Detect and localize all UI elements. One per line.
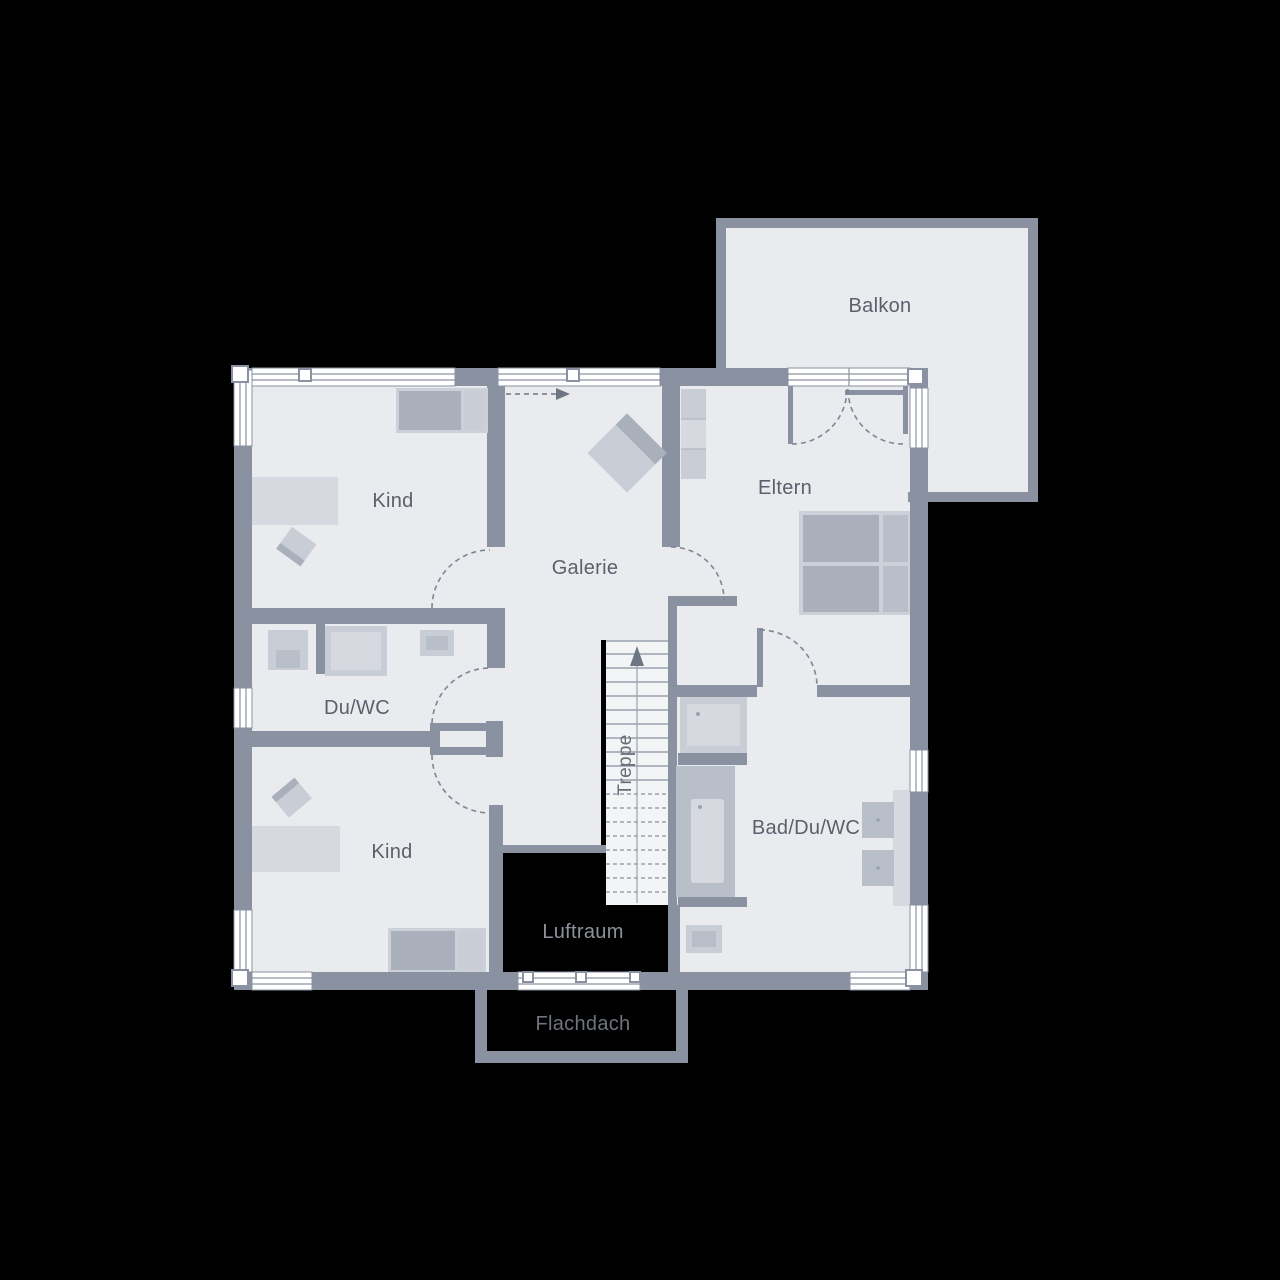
- balcony-wall-bottom: [908, 492, 1038, 502]
- wall-duwc-kind-bottom: [252, 731, 440, 747]
- exterior-wall-left: [234, 368, 252, 990]
- exterior-wall-right: [910, 368, 928, 990]
- label-luftraum: Luftraum: [542, 921, 623, 943]
- window-kind-bottom-south: [252, 972, 312, 990]
- shower-drain: [696, 712, 700, 716]
- stairwell-open-edge: [601, 640, 606, 852]
- label-treppe: Treppe: [615, 734, 636, 795]
- balcony-wall-left: [716, 218, 726, 368]
- bed-mattress: [399, 391, 461, 430]
- label-eltern: Eltern: [758, 477, 812, 499]
- window-post: [576, 972, 586, 982]
- window-post: [567, 369, 579, 381]
- wall-kind-top-galerie: [487, 386, 505, 547]
- bed-mattress-right: [803, 566, 879, 612]
- wall-eltern-bad-right: [817, 685, 910, 697]
- wardrobe-shelf: [681, 419, 706, 449]
- guard-rail-void: [503, 845, 606, 853]
- balcony-wall-right: [1028, 218, 1038, 502]
- wall-tub-bottom: [678, 897, 747, 907]
- window-post: [299, 369, 311, 381]
- window-kind-top-north: [252, 368, 455, 386]
- window-eltern-east: [910, 388, 928, 448]
- wall-lobby-top: [668, 596, 737, 606]
- label-bad-du-wc: Bad/Du/WC: [752, 817, 860, 839]
- bed-mattress: [391, 931, 455, 970]
- balcony-door-leaf-left: [788, 386, 793, 444]
- window-kind-bottom-west: [234, 910, 252, 972]
- bed-mattress-left: [803, 515, 879, 562]
- wall-kind-bottom-void: [489, 805, 503, 972]
- bathtub-drain: [698, 805, 702, 809]
- window-bad-southeast: [910, 905, 928, 972]
- window-bad-east: [910, 750, 928, 792]
- window-duwc-west: [234, 688, 252, 728]
- label-galerie: Galerie: [552, 557, 619, 579]
- shower-tray: [331, 632, 381, 670]
- window-corner-post: [232, 366, 248, 382]
- door-leaf-duwc: [430, 723, 490, 731]
- wall-eltern-bad-left: [677, 685, 757, 697]
- balcony-door-leaf-right: [903, 386, 908, 434]
- window-corner-post: [906, 970, 922, 986]
- desk: [252, 826, 340, 872]
- label-balkon: Balkon: [849, 295, 912, 317]
- window-post: [630, 972, 640, 982]
- wall-kind-top-duwc: [252, 608, 505, 624]
- window-post: [523, 972, 533, 982]
- label-flachdach: Flachdach: [536, 1013, 631, 1035]
- sliding-door-rail: [845, 390, 907, 395]
- partition-stub: [316, 624, 325, 674]
- label-duwc: Du/WC: [324, 697, 390, 719]
- door-leaf-kind-bottom: [430, 747, 490, 755]
- window-bad-south: [850, 972, 910, 990]
- floor-plan: Balkon Kind Galerie Eltern Du/WC Kind Ba…: [0, 0, 1280, 1280]
- wall-duwc-hall: [487, 624, 505, 668]
- bed-pillow: [464, 391, 484, 430]
- shower-tray: [687, 704, 740, 746]
- door-hinge-block: [486, 721, 503, 757]
- wall-galerie-eltern: [662, 386, 680, 547]
- vanity-counter: [893, 790, 910, 906]
- void-area: [503, 851, 606, 972]
- bed-pillow: [459, 931, 483, 970]
- desk: [252, 477, 338, 525]
- window-corner-post: [908, 369, 923, 384]
- washbasin-bowl: [276, 650, 300, 668]
- label-kind-top: Kind: [372, 490, 413, 512]
- door-leaf-bad: [757, 628, 763, 687]
- bathtub: [691, 799, 724, 883]
- nightstand-bottom: [883, 566, 908, 612]
- wall-bad-void: [668, 905, 680, 972]
- wc-bowl: [692, 931, 716, 947]
- floor-plan-page: Balkon Kind Galerie Eltern Du/WC Kind Ba…: [0, 0, 1280, 1280]
- flat-roof-wall-bottom: [475, 1051, 688, 1063]
- label-kind-bottom: Kind: [371, 841, 412, 863]
- wc-bowl: [426, 636, 448, 650]
- balcony-wall-top: [716, 218, 1038, 228]
- nightstand-top: [883, 515, 908, 562]
- wall-shower-tub: [678, 753, 747, 765]
- wall-stairwell-right: [668, 606, 677, 905]
- window-corner-post: [232, 970, 248, 986]
